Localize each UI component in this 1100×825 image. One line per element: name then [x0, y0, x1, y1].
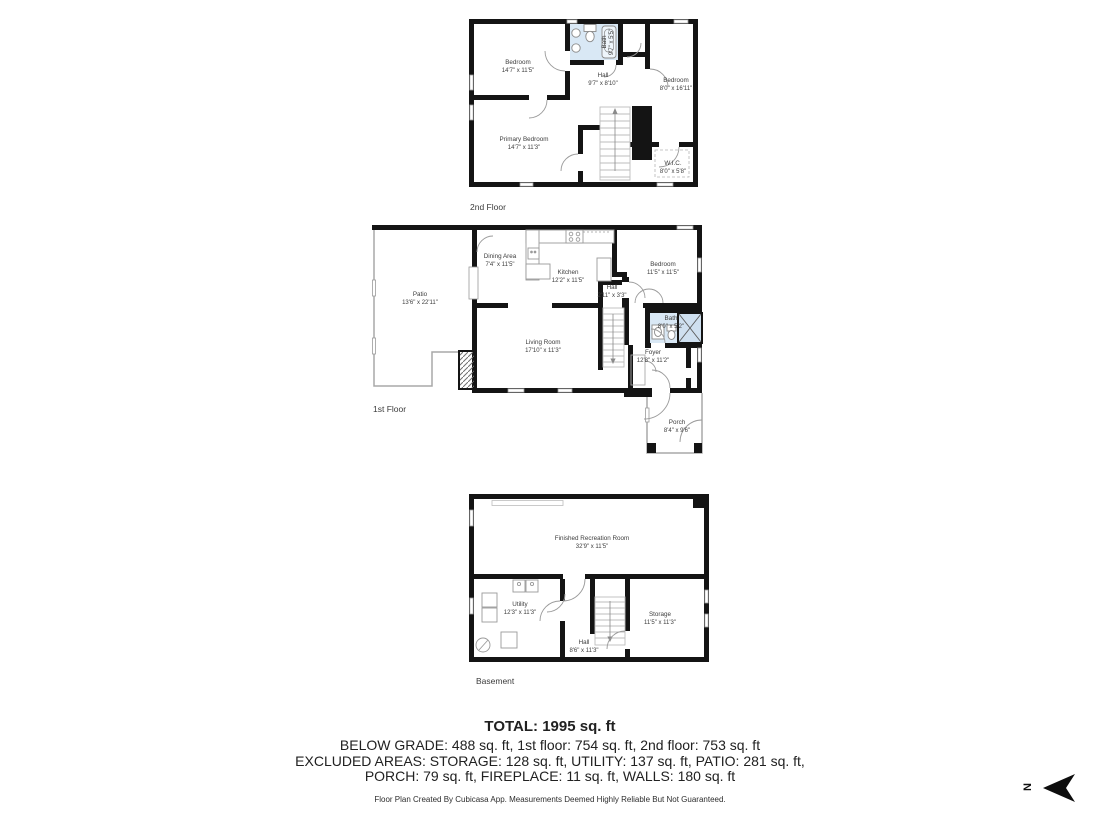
room-label-bath: Bath: [665, 315, 678, 322]
room-label-kitchen: Kitchen: [557, 269, 579, 276]
room-label-patio: Patio: [413, 291, 428, 298]
room-dims-bedroom-right: 8'0" x 16'11": [660, 86, 692, 92]
grade-areas-text: BELOW GRADE: 488 sq. ft, 1st floor: 754 …: [0, 738, 1100, 754]
room-dims-living: 17'10" x 11'3": [525, 348, 561, 354]
excluded-areas-text-2: PORCH: 79 sq. ft, FIREPLACE: 11 sq. ft, …: [0, 769, 1100, 785]
second-floor-plan: Bedroom 14'7" x 11'5" Bath 9'7" x 5'5" H…: [469, 19, 698, 187]
stairs: [603, 308, 624, 367]
room-label-bedroom-right: Bedroom: [663, 77, 689, 84]
fireplace: [459, 351, 475, 389]
room-label-bath: Bath: [601, 35, 608, 48]
stairs: [595, 597, 625, 645]
room-dims-porch: 8'4" x 9'6": [664, 428, 690, 434]
room-label-primary-bedroom: Primary Bedroom: [500, 136, 549, 143]
room-dims-bath: 9'7" x 5'5": [609, 29, 615, 55]
room-label-porch: Porch: [669, 419, 686, 426]
room-label-utility: Utility: [512, 601, 528, 608]
room-dims-rec-room: 32'9" x 11'5": [576, 544, 608, 550]
basement-label: Basement: [476, 676, 514, 686]
room-label-wic: W.I.C.: [664, 160, 681, 167]
room-dims-bedroom: 11'5" x 11'5": [647, 270, 679, 276]
second-floor-label: 2nd Floor: [470, 202, 506, 212]
room-label-living: Living Room: [526, 339, 561, 346]
room-label-bedroom-left: Bedroom: [505, 59, 531, 66]
room-dims-patio: 13'6" x 22'11": [402, 300, 438, 306]
rec-room-recess: [492, 501, 563, 506]
utility-fixtures: [476, 580, 538, 652]
room-dims-wic: 8'0" x 5'8": [660, 169, 686, 175]
first-floor-label: 1st Floor: [373, 404, 406, 414]
excluded-areas-text-1: EXCLUDED AREAS: STORAGE: 128 sq. ft, UTI…: [0, 754, 1100, 770]
basement-room-labels: Finished Recreation Room 32'9" x 11'5" U…: [504, 535, 676, 654]
room-dims-dining: 7'4" x 11'5": [485, 262, 514, 268]
room-dims-foyer: 12'8" x 11'2": [637, 358, 669, 364]
room-dims-primary-bedroom: 14'7" x 11'3": [508, 145, 540, 151]
disclaimer-text: Floor Plan Created By Cubicasa App. Meas…: [0, 795, 1100, 804]
room-dims-bath: 8'0" x 5'2": [658, 324, 684, 330]
room-label-rec-room: Finished Recreation Room: [555, 535, 630, 542]
first-floor-plan: Patio 13'6" x 22'11" Dining Area 7'4" x …: [368, 222, 713, 457]
north-letter: N: [1022, 783, 1034, 791]
room-dims-hall: 2'11" x 3'3": [597, 293, 626, 299]
room-dims-hall: 9'7" x 8'10": [588, 81, 618, 87]
room-label-hall: Hall: [579, 639, 590, 646]
stairs: [600, 107, 630, 180]
room-dims-bedroom-left: 14'7" x 11'5": [502, 68, 534, 74]
room-label-hall: Hall: [598, 72, 609, 79]
total-area-text: TOTAL: 1995 sq. ft: [0, 718, 1100, 735]
room-dims-storage: 11'5" x 11'3": [644, 620, 676, 626]
basement-plan: Finished Recreation Room 32'9" x 11'5" U…: [469, 494, 709, 662]
room-label-dining: Dining Area: [484, 253, 517, 260]
room-label-hall: Hall: [607, 284, 618, 291]
room-label-foyer: Foyer: [645, 349, 661, 356]
north-compass: N: [1020, 765, 1092, 810]
room-dims-utility: 12'3" x 11'3": [504, 610, 536, 616]
room-label-bedroom: Bedroom: [650, 261, 676, 268]
area-summary: TOTAL: 1995 sq. ft BELOW GRADE: 488 sq. …: [0, 718, 1100, 804]
room-dims-kitchen: 12'2" x 11'5": [552, 278, 584, 284]
room-label-storage: Storage: [649, 611, 672, 618]
patio-outline: [374, 230, 459, 386]
floorplan-page: Bedroom 14'7" x 11'5" Bath 9'7" x 5'5" H…: [0, 0, 1100, 825]
room-dims-hall: 8'6" x 11'3": [569, 648, 598, 654]
